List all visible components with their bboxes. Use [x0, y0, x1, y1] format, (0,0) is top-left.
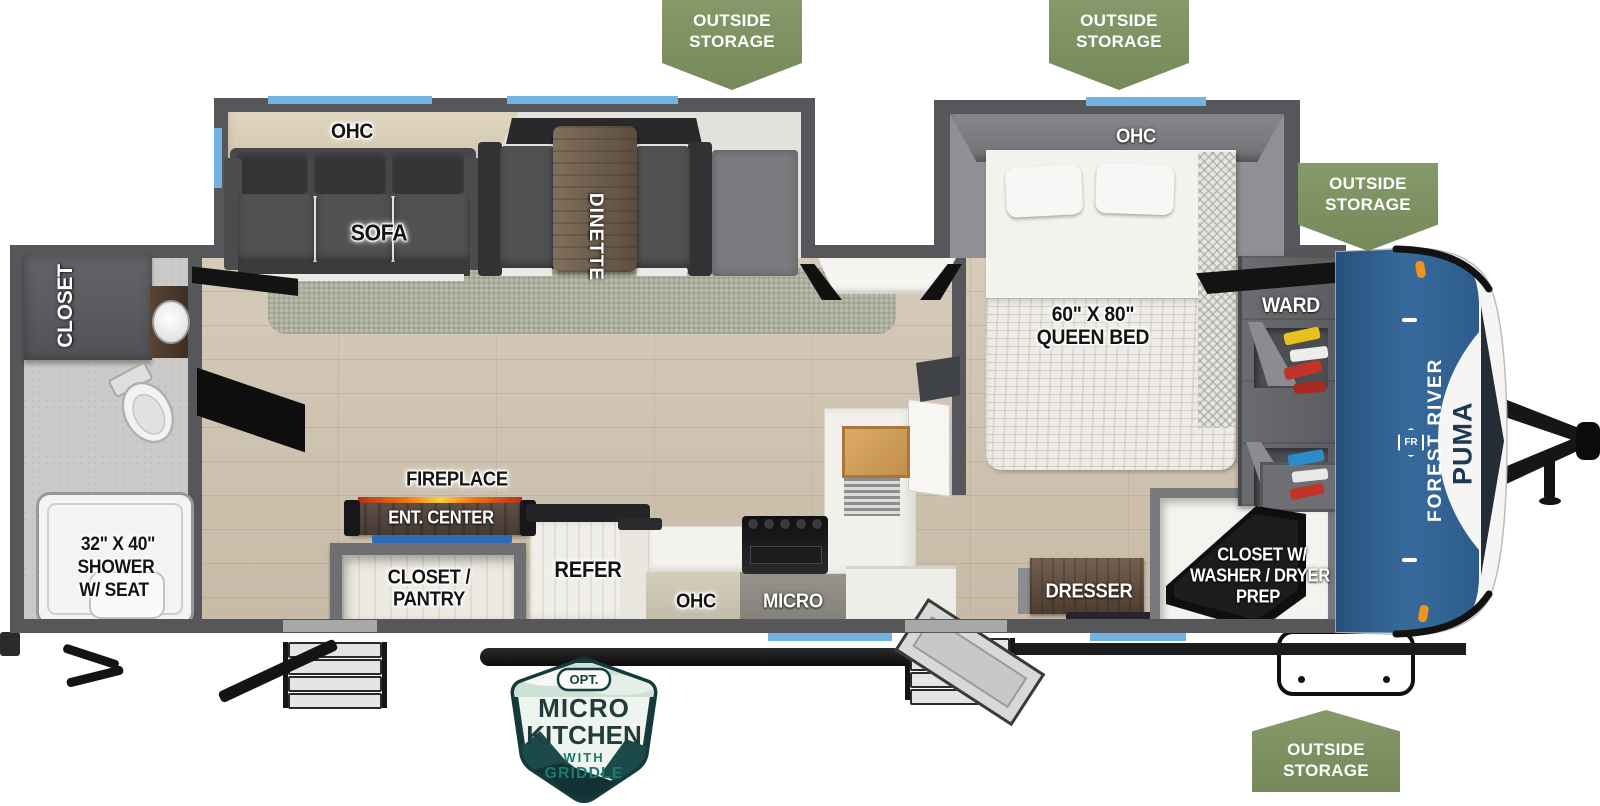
pantry-label-2: PANTRY — [393, 589, 465, 612]
ent-center-label: ENT. CENTER — [388, 508, 494, 529]
banner-line1: OUTSIDE — [1298, 173, 1438, 194]
badge-line3: WITH — [563, 750, 604, 765]
cutting-board — [842, 426, 910, 478]
banner-line2: STORAGE — [662, 31, 802, 52]
dinette-bench-left — [478, 142, 555, 276]
rear-jack-arm-1 — [62, 643, 120, 669]
banner-line1: OUTSIDE — [662, 10, 802, 31]
ward-label: WARD — [1262, 294, 1320, 318]
slide1-window-2 — [507, 96, 678, 104]
entry2-threshold — [905, 620, 1007, 632]
entry1-steps — [283, 642, 387, 708]
top-wall-mid-segment — [815, 245, 945, 258]
rear-closet — [24, 254, 152, 360]
dinette-label: DINETTE — [584, 193, 606, 281]
ohc-kitchen-label: OHC — [676, 591, 716, 614]
toilet-icon — [100, 363, 192, 455]
entry1-threshold — [283, 620, 377, 632]
kitchen-ohc-upper — [648, 526, 746, 574]
dresser-label: DRESSER — [1045, 581, 1132, 604]
outside-storage-banner-bottom: OUTSIDE STORAGE — [1252, 710, 1400, 792]
wd-label-3: PREP — [1236, 587, 1280, 608]
dinette-end-panel — [712, 150, 798, 276]
badge-line4: GRIDDLE — [545, 765, 624, 782]
ohc-bedroom-label: OHC — [1116, 126, 1156, 149]
fireplace-label: FIREPLACE — [406, 469, 508, 492]
outside-storage-banner-front: OUTSIDE STORAGE — [1298, 163, 1438, 251]
shower-name-label: SHOWER — [77, 557, 154, 579]
badge-line2: KITCHEN — [526, 720, 642, 750]
micro-kitchen-badge: OPT. MICRO KITCHEN WITH GRIDDLE — [502, 655, 666, 803]
slide2-right-wall — [1284, 100, 1300, 258]
outside-storage-banner-top-left: OUTSIDE STORAGE — [662, 0, 802, 90]
rear-closet-label: CLOSET — [54, 264, 78, 347]
counter-edge — [618, 518, 662, 530]
refer-label: REFER — [554, 557, 621, 583]
pantry-label-1: CLOSET / — [388, 567, 471, 590]
bath-sink — [152, 300, 190, 344]
banner-line1: OUTSIDE — [1252, 739, 1400, 760]
stove — [742, 516, 828, 574]
fr-logo-text: FR — [1404, 437, 1417, 448]
ohc-sofa-label: OHC — [331, 120, 373, 144]
ent-center-shelf — [372, 535, 512, 543]
banner-line1: OUTSIDE — [1049, 10, 1189, 31]
rear-wall — [10, 245, 24, 633]
banner-line2: STORAGE — [1252, 760, 1400, 781]
brand-model-label: PUMA — [1448, 360, 1478, 526]
badge-line1: MICRO — [538, 693, 630, 723]
slide1-window-1 — [268, 96, 432, 104]
wd-label-2: WASHER / DRYER — [1190, 566, 1330, 587]
griddle-vent — [844, 478, 900, 516]
fridge-open-door — [908, 399, 950, 497]
slide1-window-left — [214, 128, 222, 188]
banner-line2: STORAGE — [1298, 194, 1438, 215]
bed-name-label: QUEEN BED — [1037, 326, 1149, 350]
bed-pillow-right — [1095, 163, 1175, 216]
rear-jack-arm-2 — [66, 665, 124, 688]
badge-opt-label: OPT. — [570, 672, 599, 687]
slide2-left-wall — [934, 100, 950, 258]
dinette-bench-right — [635, 142, 712, 276]
bottom-window-1 — [768, 633, 892, 641]
rear-bumper — [0, 632, 20, 656]
bed-pillow-left — [1005, 164, 1084, 218]
slide1-right-wall — [801, 98, 815, 258]
ent-center-speaker-left — [344, 500, 360, 536]
sofa — [224, 146, 482, 284]
fridge-shadow-panel — [916, 356, 960, 402]
sofa-label: SOFA — [351, 220, 408, 247]
bottom-wall — [10, 619, 1344, 633]
micro-label: MICRO — [763, 591, 823, 614]
slide2-window — [1086, 97, 1206, 106]
outside-storage-banner-top-right: OUTSIDE STORAGE — [1049, 0, 1189, 90]
banner-line2: STORAGE — [1049, 31, 1189, 52]
shower-size-label: 32" X 40" — [81, 534, 155, 556]
brand-maker-label: FOREST RIVER — [1422, 300, 1450, 580]
shower-suffix-label: W/ SEAT — [79, 580, 149, 602]
bottom-window-2 — [1090, 633, 1186, 641]
counter-left — [620, 528, 648, 619]
wd-label-1: CLOSET W/ — [1217, 545, 1307, 566]
bed-size-label: 60" X 80" — [1052, 303, 1134, 327]
rv-floorplan: OHC SOFA DINETTE OHC 60" X 8 — [0, 0, 1600, 806]
